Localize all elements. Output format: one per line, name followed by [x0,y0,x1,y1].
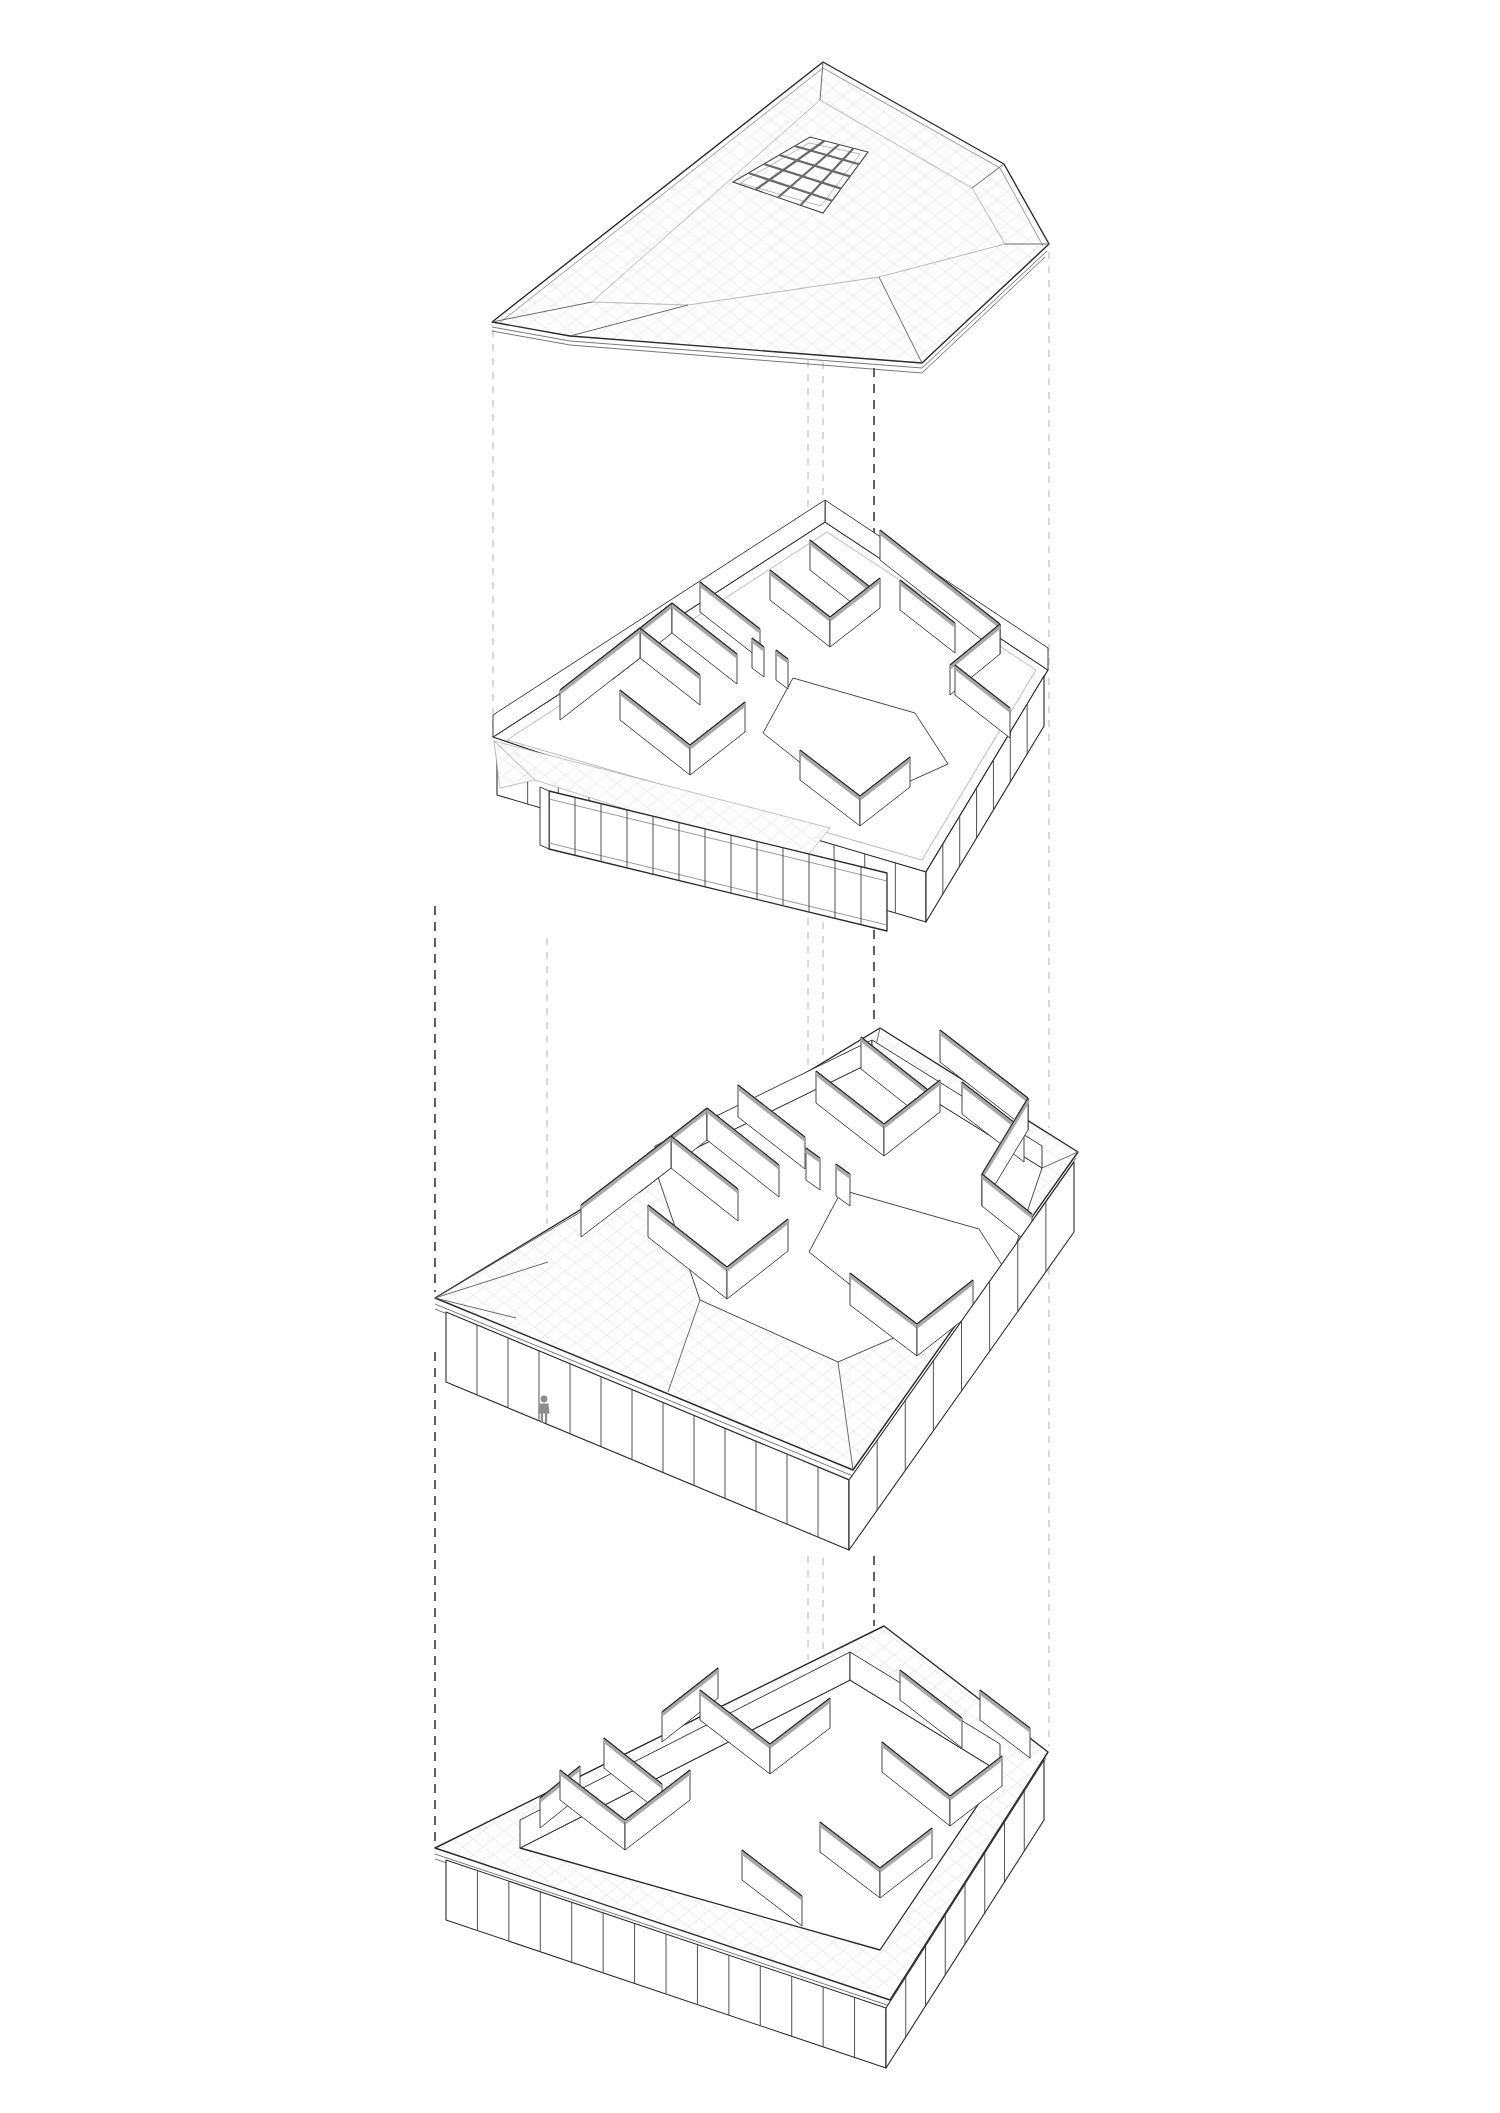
exploded-axon-canvas [0,0,1500,2113]
architectural-drawing [0,0,1500,2113]
